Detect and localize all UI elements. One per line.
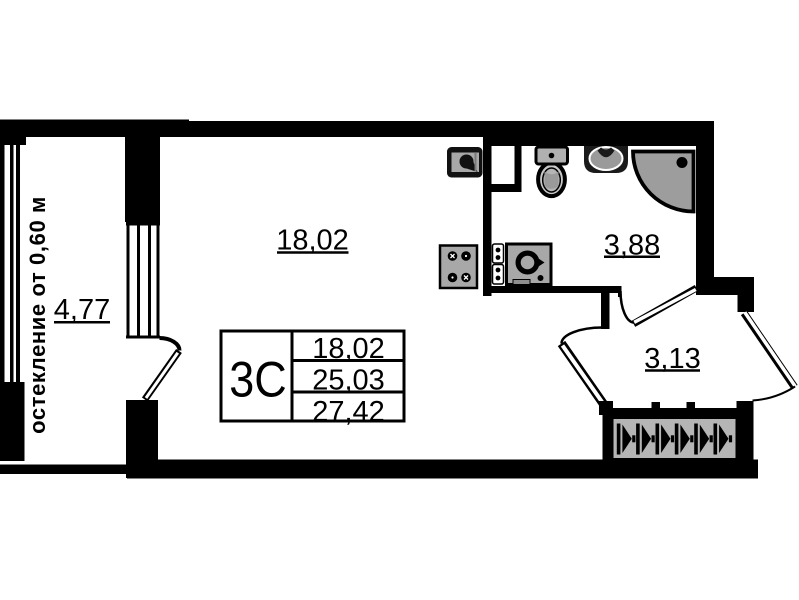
svg-text:остекление от 0,60 м: остекление от 0,60 м xyxy=(25,196,50,434)
svg-text:25,03: 25,03 xyxy=(312,365,385,397)
svg-text:3С: 3С xyxy=(229,352,287,408)
svg-text:27,42: 27,42 xyxy=(312,396,385,428)
svg-text:18,02: 18,02 xyxy=(312,333,385,365)
